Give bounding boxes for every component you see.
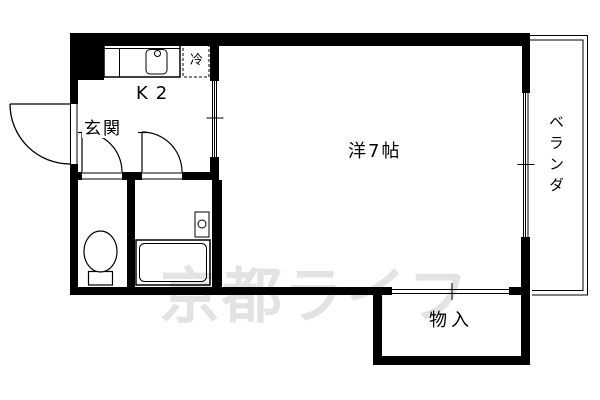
kitchen-label: K2 xyxy=(136,85,175,103)
wall-hall-bottom-c xyxy=(182,172,218,180)
veranda-window-icon xyxy=(518,93,535,237)
wall-left-lower xyxy=(70,165,78,295)
wall-top xyxy=(70,33,530,46)
kitchen-sink-icon xyxy=(146,50,167,75)
toilet-icon xyxy=(84,231,117,285)
kitchen-counter-icon xyxy=(104,45,180,77)
veranda-label: ベランダ xyxy=(548,114,563,198)
wall-toilet-divider xyxy=(127,180,135,288)
main-room-label: 洋7帖 xyxy=(348,143,401,161)
wall-storage-left xyxy=(373,293,382,365)
wall-kitchen-right-upper xyxy=(210,46,219,81)
bathroom-door-swing-icon xyxy=(138,132,182,172)
kitchen-sliding-door-icon xyxy=(207,80,224,158)
floor-plan: 京都ライフ xyxy=(0,0,600,400)
wall-left-upper xyxy=(70,78,78,103)
wall-bath-right xyxy=(212,180,222,288)
refrigerator-label: 冷 xyxy=(190,54,203,67)
bathtub-icon xyxy=(136,240,210,285)
wall-storage-bottom xyxy=(373,356,530,365)
entrance-label: 玄関 xyxy=(82,121,124,138)
storage-label: 物入 xyxy=(429,312,473,330)
wall-right-lower xyxy=(521,237,530,365)
entrance-door-frame xyxy=(70,103,78,165)
wall-hall-bottom-b xyxy=(122,172,142,180)
storage-sliding-door-icon xyxy=(392,283,510,300)
washbasin-icon xyxy=(195,212,209,237)
entrance-door-swing-icon xyxy=(10,104,70,164)
wall-top-left-block xyxy=(70,33,104,80)
wall-right-upper xyxy=(522,46,530,93)
wall-bottom xyxy=(70,287,392,295)
wall-hall-bottom-a xyxy=(70,172,82,180)
